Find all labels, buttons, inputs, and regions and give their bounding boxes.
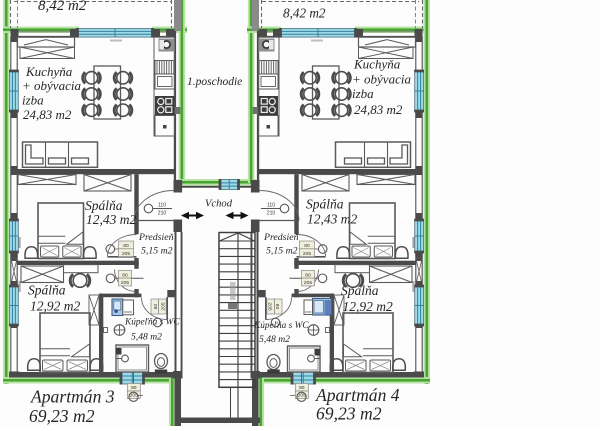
svg-text:12,92 m2: 12,92 m2 <box>343 299 393 314</box>
svg-text:24,83 m2: 24,83 m2 <box>23 107 72 122</box>
svg-text:80: 80 <box>122 272 128 278</box>
svg-text:205: 205 <box>160 302 166 310</box>
svg-text:+ obývacia: + obývacia <box>22 78 81 93</box>
svg-text:Vchod: Vchod <box>205 199 233 210</box>
svg-text:Apartmán 3: Apartmán 3 <box>30 387 115 407</box>
svg-text:8,42 m2: 8,42 m2 <box>283 6 326 21</box>
svg-text:110: 110 <box>267 203 275 209</box>
svg-text:Spálňa: Spálňa <box>306 197 344 212</box>
svg-text:5,15 m2: 5,15 m2 <box>141 246 173 257</box>
svg-text:5,15 m2: 5,15 m2 <box>266 246 298 257</box>
svg-text:Predsieň: Predsieň <box>263 232 299 243</box>
svg-text:Kúpeľňa s WC: Kúpeľňa s WC <box>124 318 180 328</box>
svg-text:Predsieň: Predsieň <box>138 232 174 243</box>
svg-text:205: 205 <box>304 280 312 286</box>
svg-text:Kuchyňa: Kuchyňa <box>25 64 73 79</box>
svg-text:Spálňa: Spálňa <box>28 283 66 298</box>
svg-text:80: 80 <box>299 385 305 391</box>
svg-text:izba: izba <box>22 93 44 108</box>
svg-text:210: 210 <box>267 211 276 217</box>
svg-text:izba: izba <box>352 86 374 101</box>
svg-text:110: 110 <box>158 203 166 209</box>
svg-text:210: 210 <box>158 211 167 217</box>
svg-text:205: 205 <box>267 302 273 310</box>
svg-text:5,48 m2: 5,48 m2 <box>259 334 290 345</box>
svg-text:Apartmán 4: Apartmán 4 <box>315 385 400 405</box>
svg-text:205: 205 <box>122 251 130 257</box>
svg-text:12,43 m2: 12,43 m2 <box>86 212 136 227</box>
svg-text:8,42 m2: 8,42 m2 <box>38 0 87 14</box>
svg-text:24,83 m2: 24,83 m2 <box>354 102 403 117</box>
svg-text:80: 80 <box>304 243 310 249</box>
svg-text:205: 205 <box>303 251 311 257</box>
svg-text:80: 80 <box>305 272 311 278</box>
svg-text:80: 80 <box>131 385 137 391</box>
svg-text:5,48 m2: 5,48 m2 <box>131 332 162 343</box>
svg-text:80: 80 <box>153 304 159 310</box>
svg-text:80: 80 <box>274 304 280 310</box>
svg-text:12,92 m2: 12,92 m2 <box>30 299 80 314</box>
svg-text:+ obývacia: + obývacia <box>352 72 411 87</box>
svg-text:Kúpeľňa s WC: Kúpeľňa s WC <box>253 321 309 331</box>
svg-text:1.poschodie: 1.poschodie <box>187 76 242 88</box>
svg-text:205: 205 <box>121 280 129 286</box>
svg-text:Spálňa: Spálňa <box>85 198 123 213</box>
svg-text:69,23 m2: 69,23 m2 <box>316 404 382 424</box>
svg-text:80: 80 <box>123 243 129 249</box>
svg-text:69,23 m2: 69,23 m2 <box>29 406 95 426</box>
